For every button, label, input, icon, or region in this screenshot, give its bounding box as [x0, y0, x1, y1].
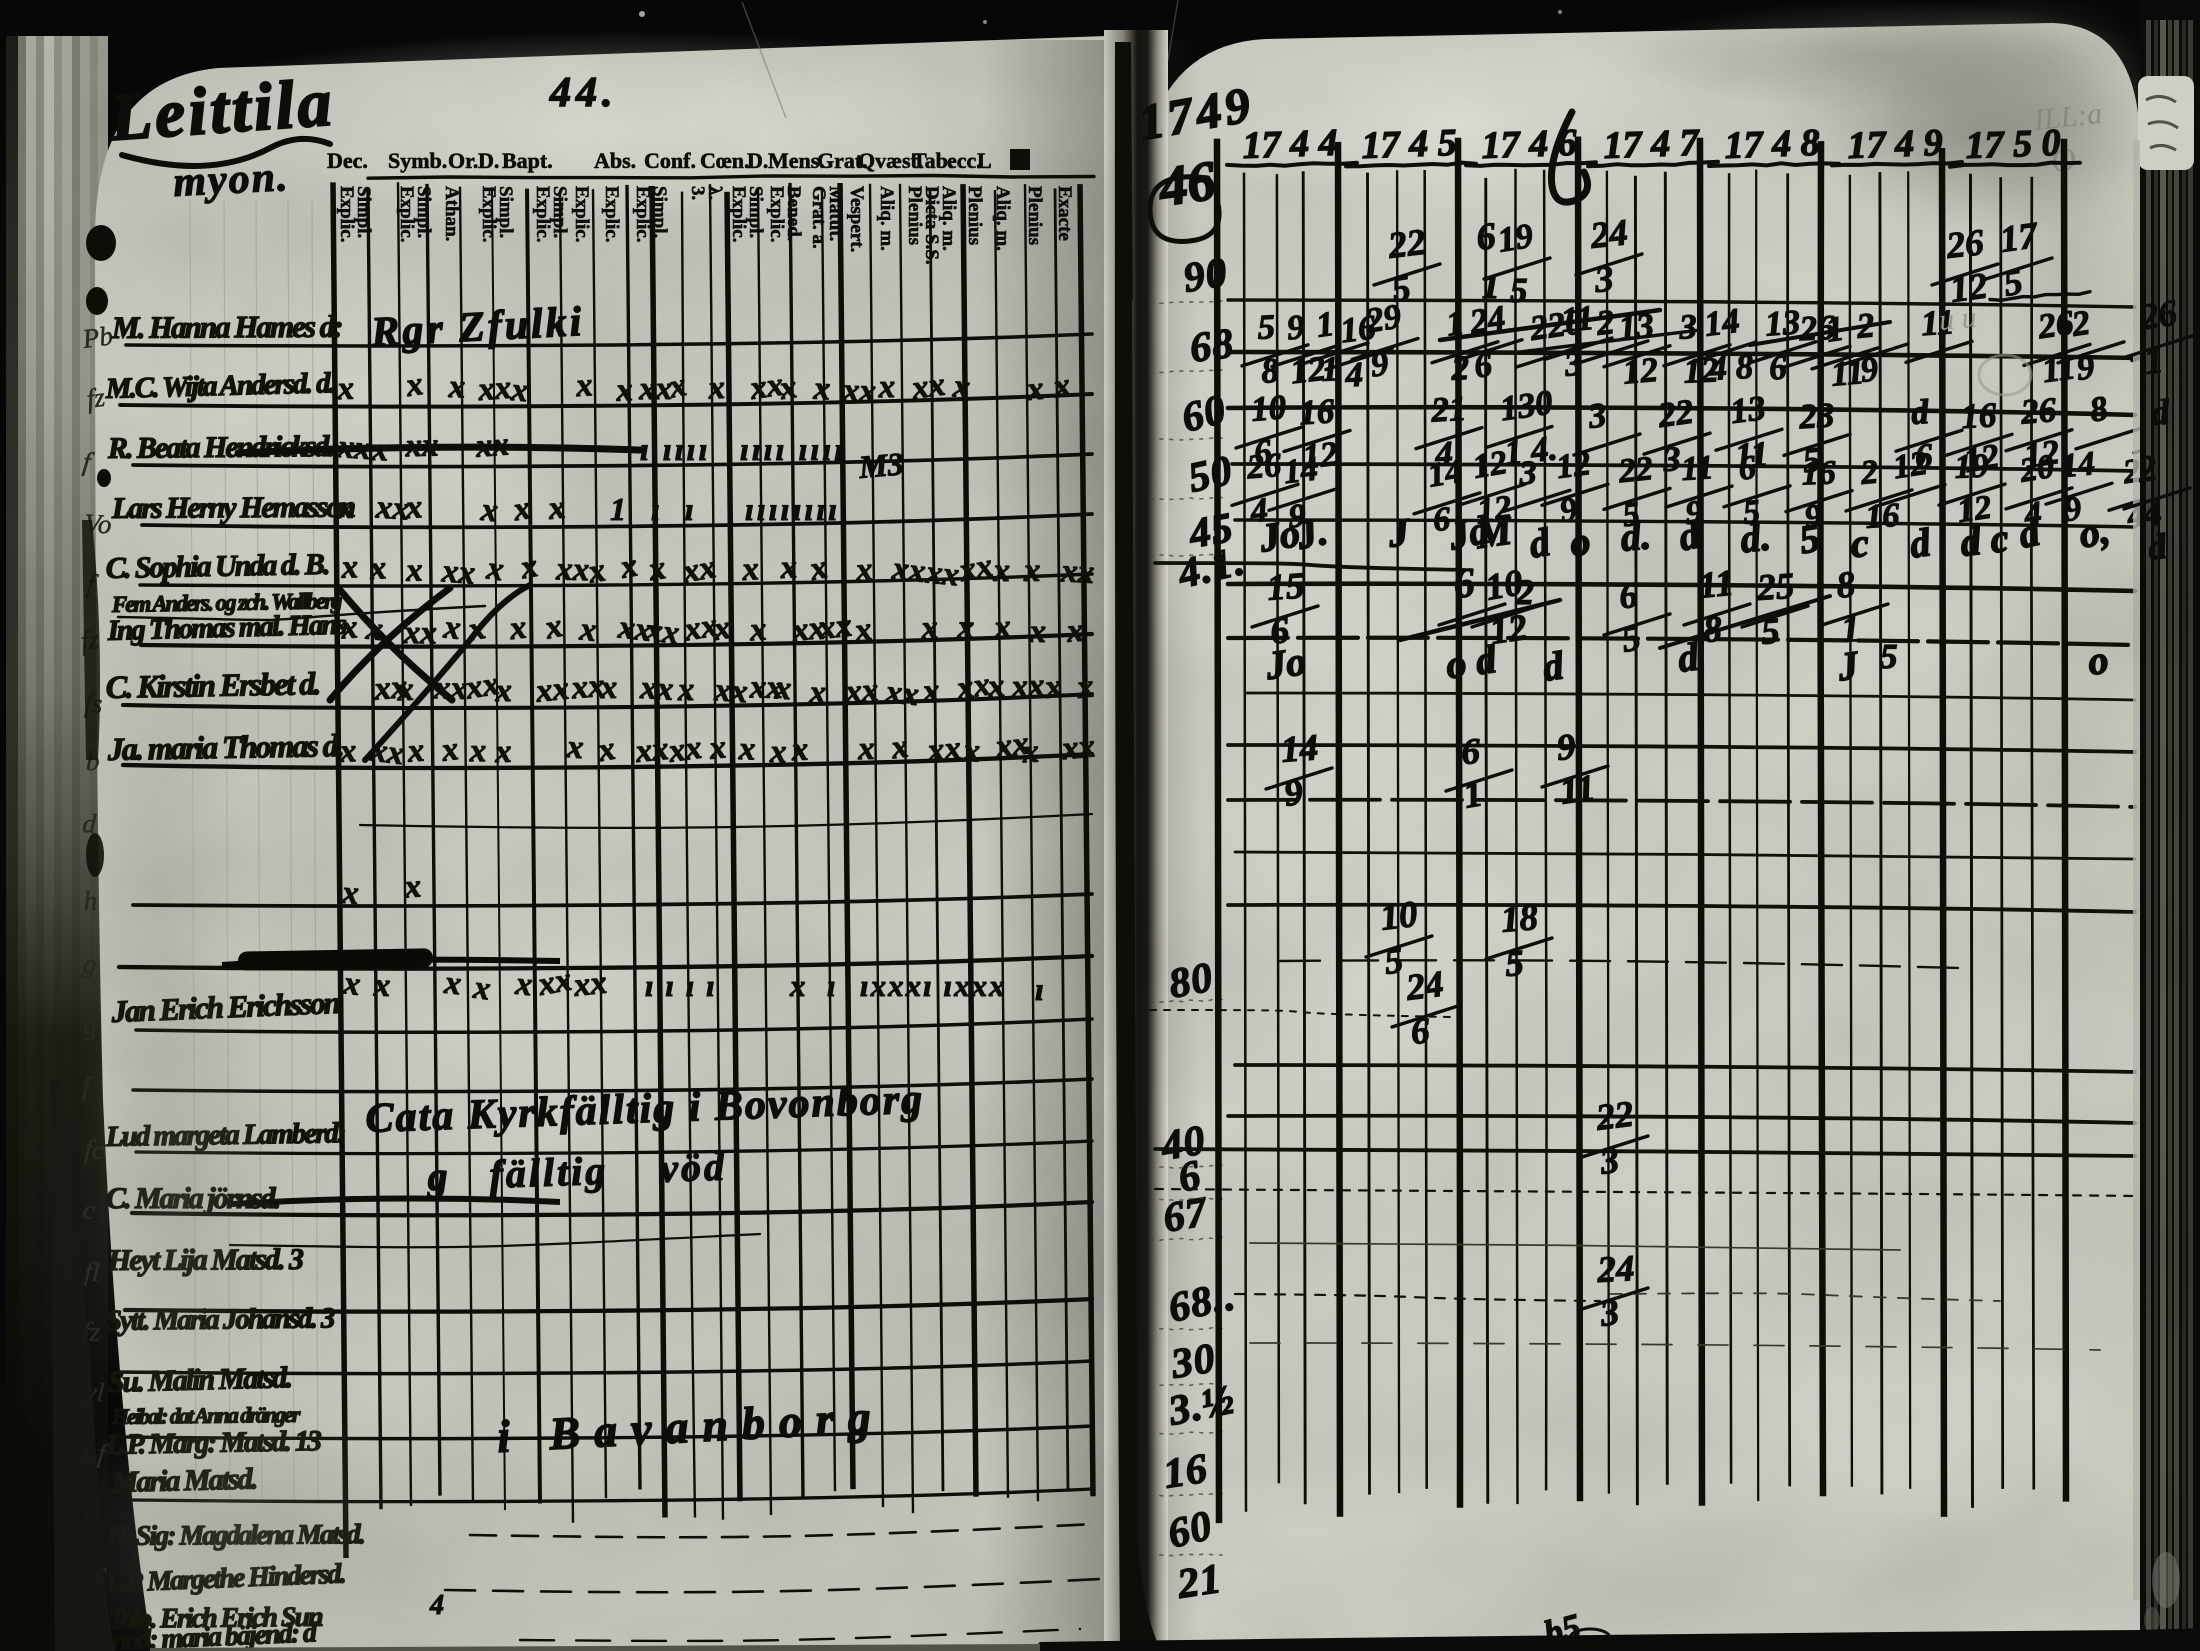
svg-text:u u: u u	[1938, 301, 1978, 337]
